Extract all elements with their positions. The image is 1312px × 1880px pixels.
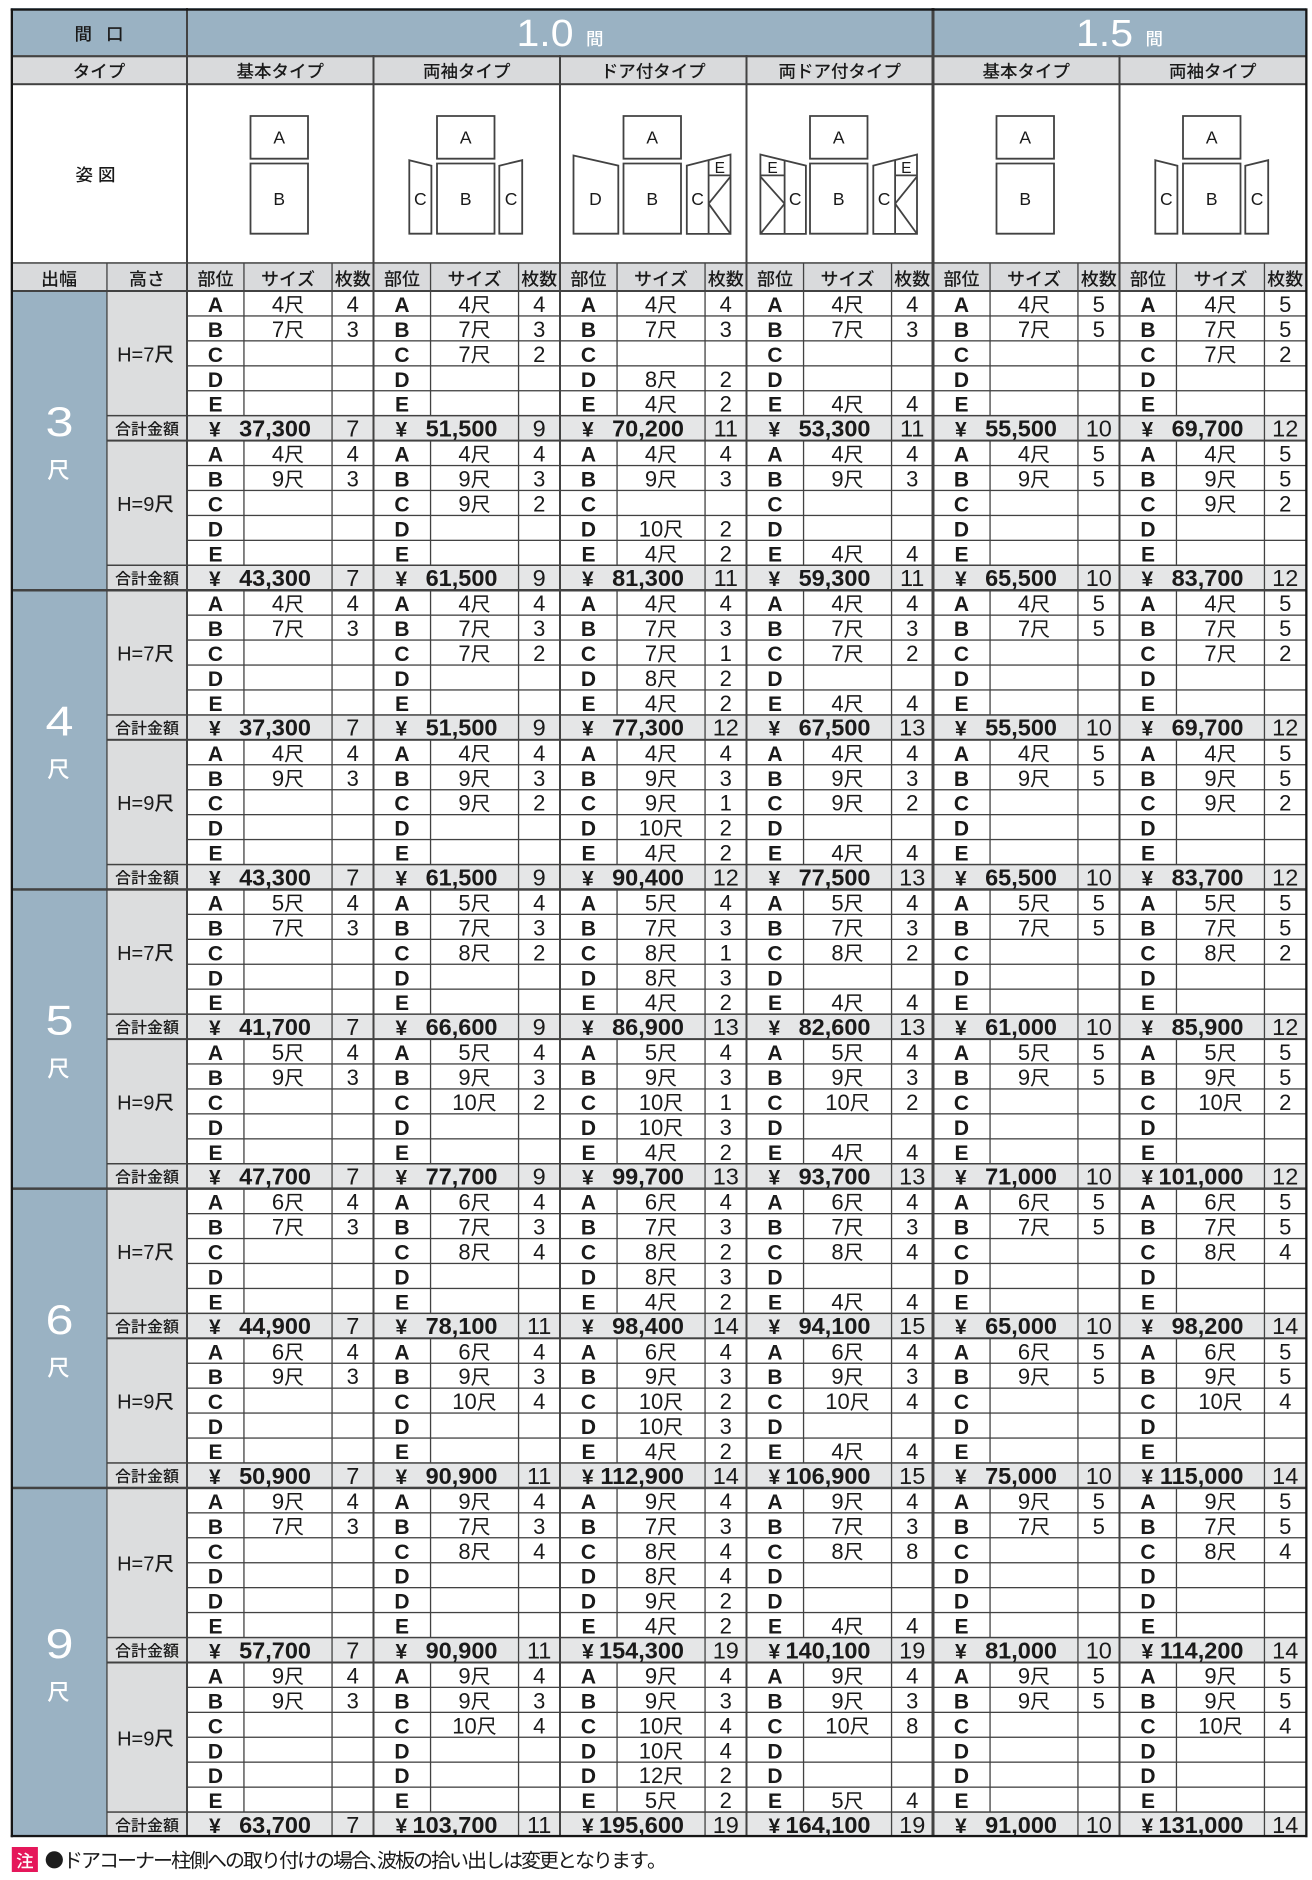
svg-text:B: B: [1140, 618, 1155, 641]
svg-text:2: 2: [720, 1589, 732, 1614]
svg-text:A: A: [1140, 1192, 1155, 1215]
svg-text:12: 12: [1272, 1164, 1298, 1190]
svg-text:B: B: [581, 768, 596, 791]
svg-text:5: 5: [1204, 891, 1216, 916]
svg-text:¥: ¥: [1142, 1815, 1154, 1838]
svg-text:7: 7: [1204, 317, 1216, 342]
svg-text:4: 4: [347, 1339, 359, 1364]
svg-text:7: 7: [831, 616, 843, 641]
svg-text:¥: ¥: [209, 1167, 221, 1190]
svg-text:2: 2: [720, 841, 732, 866]
svg-text:C: C: [767, 1541, 782, 1564]
svg-text:10: 10: [825, 1713, 849, 1738]
svg-text:D: D: [581, 1765, 596, 1788]
svg-text:A: A: [954, 1192, 969, 1215]
svg-text:2: 2: [533, 940, 545, 965]
svg-text:4: 4: [347, 1190, 359, 1215]
svg-text:E: E: [395, 1616, 409, 1639]
svg-text:9: 9: [272, 1489, 284, 1514]
svg-text:7: 7: [645, 1514, 657, 1539]
svg-text:C: C: [394, 942, 409, 965]
svg-text:8: 8: [645, 367, 657, 392]
svg-text:3: 3: [906, 1688, 918, 1713]
svg-text:4: 4: [533, 1240, 545, 1265]
svg-text:4: 4: [347, 591, 359, 616]
svg-text:6: 6: [458, 1339, 470, 1364]
svg-text:9: 9: [272, 1688, 284, 1713]
svg-text:11: 11: [527, 1812, 551, 1838]
svg-text:A: A: [581, 1666, 596, 1689]
svg-text:C: C: [767, 942, 782, 965]
svg-text:4: 4: [645, 741, 657, 766]
svg-text:B: B: [208, 1217, 223, 1240]
svg-text:¥: ¥: [769, 1017, 781, 1040]
svg-text:3: 3: [533, 317, 545, 342]
svg-text:E: E: [581, 1790, 595, 1813]
svg-text:86,900: 86,900: [612, 1014, 684, 1040]
svg-text:2: 2: [720, 666, 732, 691]
svg-text:C: C: [581, 942, 596, 965]
svg-text:C: C: [767, 1715, 782, 1738]
svg-text:9: 9: [272, 467, 284, 492]
svg-text:2: 2: [1279, 791, 1291, 816]
svg-text:5: 5: [1093, 467, 1105, 492]
svg-text:¥: ¥: [582, 1316, 594, 1339]
svg-text:B: B: [394, 1366, 409, 1389]
svg-text:7: 7: [831, 317, 843, 342]
svg-text:8: 8: [645, 666, 657, 691]
svg-text:A: A: [954, 444, 969, 467]
svg-text:B: B: [394, 469, 409, 492]
svg-text:4: 4: [645, 841, 657, 866]
svg-text:B: B: [208, 768, 223, 791]
svg-text:10: 10: [639, 816, 663, 841]
svg-text:C: C: [1140, 942, 1155, 965]
svg-text:66,600: 66,600: [426, 1014, 498, 1040]
svg-text:4: 4: [1204, 741, 1216, 766]
svg-text:112,900: 112,900: [600, 1463, 684, 1489]
svg-text:9: 9: [1204, 467, 1216, 492]
svg-text:¥: ¥: [396, 1316, 408, 1339]
svg-text:9: 9: [458, 1065, 470, 1090]
svg-text:E: E: [395, 1441, 409, 1464]
svg-text:4: 4: [347, 292, 359, 317]
svg-text:D: D: [581, 369, 596, 392]
svg-text:91,000: 91,000: [985, 1812, 1057, 1838]
svg-text:3: 3: [906, 1215, 918, 1240]
svg-text:C: C: [954, 643, 969, 666]
svg-text:9: 9: [533, 416, 546, 442]
svg-text:¥: ¥: [396, 1017, 408, 1040]
svg-text:9: 9: [645, 1664, 657, 1689]
svg-text:7: 7: [645, 915, 657, 940]
svg-text:1: 1: [720, 940, 732, 965]
svg-text:C: C: [208, 1715, 223, 1738]
svg-text:2: 2: [720, 1389, 732, 1414]
svg-text:7: 7: [645, 1215, 657, 1240]
svg-text:5: 5: [1279, 1364, 1291, 1389]
svg-text:C: C: [878, 189, 891, 209]
svg-text:3: 3: [720, 1265, 732, 1290]
svg-text:5: 5: [1093, 1688, 1105, 1713]
svg-text:7: 7: [1204, 342, 1216, 367]
svg-text:9: 9: [1018, 1688, 1030, 1713]
svg-text:7: 7: [272, 1514, 284, 1539]
svg-text:9: 9: [831, 766, 843, 791]
svg-text:3: 3: [533, 766, 545, 791]
svg-text:51,500: 51,500: [426, 416, 498, 442]
svg-text:4: 4: [831, 392, 843, 417]
svg-text:5: 5: [1279, 891, 1291, 916]
svg-text:C: C: [208, 1541, 223, 1564]
svg-text:4: 4: [272, 591, 284, 616]
svg-text:E: E: [1141, 394, 1155, 417]
svg-text:9: 9: [533, 1014, 546, 1040]
svg-text:C: C: [1140, 1092, 1155, 1115]
svg-text:E: E: [395, 1291, 409, 1314]
svg-text:C: C: [1140, 1715, 1155, 1738]
svg-text:C: C: [394, 1391, 409, 1414]
svg-text:E: E: [954, 543, 968, 566]
svg-text:10: 10: [639, 1738, 663, 1763]
svg-text:14: 14: [1272, 1313, 1298, 1339]
svg-text:E: E: [208, 1616, 222, 1639]
svg-text:5: 5: [1279, 467, 1291, 492]
svg-text:D: D: [581, 1117, 596, 1140]
svg-text:11: 11: [527, 1637, 551, 1663]
svg-text:3: 3: [720, 1215, 732, 1240]
svg-text:C: C: [394, 1092, 409, 1115]
svg-text:2: 2: [906, 641, 918, 666]
svg-text:3: 3: [347, 616, 359, 641]
svg-text:4: 4: [906, 292, 918, 317]
svg-text:C: C: [208, 344, 223, 367]
svg-text:E: E: [1141, 543, 1155, 566]
svg-text:A: A: [460, 128, 472, 148]
svg-text:E: E: [581, 1142, 595, 1165]
svg-text:65,000: 65,000: [985, 1313, 1057, 1339]
svg-text:55,500: 55,500: [985, 416, 1057, 442]
svg-text:6: 6: [1204, 1190, 1216, 1215]
svg-text:9: 9: [1204, 1489, 1216, 1514]
svg-text:9: 9: [645, 1065, 657, 1090]
svg-text:¥: ¥: [955, 1466, 967, 1489]
svg-text:7: 7: [272, 1215, 284, 1240]
svg-text:3: 3: [533, 1688, 545, 1713]
svg-text:15: 15: [899, 1313, 925, 1339]
svg-text:4: 4: [831, 1614, 843, 1639]
svg-text:A: A: [394, 1491, 409, 1514]
svg-text:A: A: [1140, 743, 1155, 766]
svg-text:A: A: [208, 444, 223, 467]
svg-text:6: 6: [645, 1339, 657, 1364]
svg-text:E: E: [954, 1790, 968, 1813]
svg-text:D: D: [767, 1267, 782, 1290]
svg-text:5: 5: [1093, 317, 1105, 342]
svg-text:A: A: [208, 294, 223, 317]
svg-text:C: C: [1251, 189, 1264, 209]
svg-text:¥: ¥: [1142, 718, 1154, 741]
svg-text:A: A: [954, 593, 969, 616]
svg-text:4: 4: [831, 990, 843, 1015]
svg-text:B: B: [208, 1366, 223, 1389]
svg-text:B: B: [1019, 189, 1031, 209]
svg-text:¥: ¥: [1142, 1640, 1154, 1663]
svg-text:4: 4: [347, 1040, 359, 1065]
svg-text:¥: ¥: [582, 718, 594, 741]
svg-text:8: 8: [645, 1564, 657, 1589]
svg-text:4: 4: [645, 541, 657, 566]
svg-text:4: 4: [831, 292, 843, 317]
svg-text:A: A: [394, 444, 409, 467]
svg-text:10: 10: [639, 1389, 663, 1414]
svg-text:10: 10: [1086, 1637, 1112, 1663]
svg-text:D: D: [394, 818, 409, 841]
svg-text:D: D: [767, 818, 782, 841]
svg-text:9: 9: [533, 1164, 546, 1190]
svg-text:7: 7: [1018, 317, 1030, 342]
svg-text:4: 4: [831, 442, 843, 467]
svg-text:B: B: [954, 1067, 969, 1090]
svg-text:A: A: [208, 593, 223, 616]
svg-text:3: 3: [533, 1215, 545, 1240]
svg-text:4: 4: [458, 591, 470, 616]
svg-text:4: 4: [1279, 1389, 1291, 1414]
svg-text:3: 3: [46, 398, 74, 445]
svg-text:3: 3: [906, 1364, 918, 1389]
svg-text:B: B: [954, 1516, 969, 1539]
svg-text:3: 3: [533, 1514, 545, 1539]
svg-text:4: 4: [831, 841, 843, 866]
svg-text:44,900: 44,900: [239, 1313, 311, 1339]
svg-text:154,300: 154,300: [599, 1637, 684, 1663]
svg-text:A: A: [208, 1491, 223, 1514]
svg-text:4: 4: [1279, 1240, 1291, 1265]
svg-text:4: 4: [906, 1040, 918, 1065]
svg-text:C: C: [208, 1391, 223, 1414]
svg-text:C: C: [1140, 793, 1155, 816]
svg-text:6: 6: [645, 1190, 657, 1215]
svg-text:H=7: H=7: [117, 644, 154, 666]
svg-text:9: 9: [831, 1489, 843, 1514]
svg-text:A: A: [208, 743, 223, 766]
svg-text:A: A: [954, 1666, 969, 1689]
svg-text:65,500: 65,500: [985, 565, 1057, 591]
svg-text:C: C: [767, 344, 782, 367]
svg-text:A: A: [394, 1042, 409, 1065]
svg-text:D: D: [394, 1765, 409, 1788]
svg-text:9: 9: [1018, 766, 1030, 791]
svg-text:E: E: [715, 160, 725, 177]
svg-text:A: A: [954, 1042, 969, 1065]
svg-text:19: 19: [713, 1637, 739, 1663]
svg-text:D: D: [1140, 668, 1155, 691]
svg-text:5: 5: [1093, 591, 1105, 616]
svg-text:E: E: [954, 1291, 968, 1314]
svg-text:4: 4: [720, 1564, 732, 1589]
svg-text:5: 5: [1279, 1664, 1291, 1689]
svg-text:D: D: [581, 1267, 596, 1290]
svg-text:D: D: [1140, 967, 1155, 990]
svg-text:5: 5: [1093, 1489, 1105, 1514]
svg-text:4: 4: [272, 442, 284, 467]
svg-text:5: 5: [1279, 1489, 1291, 1514]
svg-text:C: C: [208, 1242, 223, 1265]
svg-text:9: 9: [831, 1688, 843, 1713]
svg-text:2: 2: [1279, 492, 1291, 517]
svg-text:77,300: 77,300: [612, 715, 684, 741]
svg-text:7: 7: [346, 1014, 359, 1040]
svg-text:¥: ¥: [1142, 568, 1154, 591]
svg-text:3: 3: [347, 1688, 359, 1713]
svg-text:9: 9: [831, 1065, 843, 1090]
svg-text:D: D: [954, 668, 969, 691]
svg-text:C: C: [1140, 494, 1155, 517]
svg-text:3: 3: [720, 1364, 732, 1389]
svg-text:12: 12: [713, 715, 739, 741]
svg-text:5: 5: [1279, 1514, 1291, 1539]
svg-text:E: E: [768, 992, 782, 1015]
svg-text:195,600: 195,600: [599, 1812, 684, 1838]
svg-text:5: 5: [645, 1788, 657, 1813]
svg-text:A: A: [581, 1042, 596, 1065]
svg-text:A: A: [767, 743, 782, 766]
svg-text:43,300: 43,300: [239, 864, 311, 890]
svg-text:4: 4: [720, 1489, 732, 1514]
svg-text:C: C: [767, 1242, 782, 1265]
svg-text:5: 5: [272, 1040, 284, 1065]
svg-text:¥: ¥: [209, 1316, 221, 1339]
svg-text:4: 4: [645, 1439, 657, 1464]
svg-text:94,100: 94,100: [799, 1313, 871, 1339]
svg-text:A: A: [208, 1042, 223, 1065]
svg-text:¥: ¥: [1142, 419, 1154, 442]
svg-text:51,500: 51,500: [426, 715, 498, 741]
svg-text:B: B: [1140, 768, 1155, 791]
svg-text:H=9: H=9: [117, 494, 154, 516]
svg-text:12: 12: [713, 864, 739, 890]
svg-text:7: 7: [458, 317, 470, 342]
svg-text:B: B: [581, 1690, 596, 1713]
svg-text:57,700: 57,700: [239, 1637, 311, 1663]
svg-text:5: 5: [1093, 1215, 1105, 1240]
svg-text:C: C: [789, 189, 802, 209]
svg-text:E: E: [208, 843, 222, 866]
svg-text:4: 4: [831, 591, 843, 616]
svg-text:5: 5: [458, 891, 470, 916]
svg-text:D: D: [954, 1591, 969, 1614]
svg-text:A: A: [954, 893, 969, 916]
svg-text:2: 2: [533, 641, 545, 666]
svg-text:9: 9: [272, 1065, 284, 1090]
svg-text:D: D: [208, 1117, 223, 1140]
svg-text:E: E: [768, 1142, 782, 1165]
svg-text:C: C: [1140, 344, 1155, 367]
svg-text:E: E: [1141, 693, 1155, 716]
svg-text:¥: ¥: [769, 718, 781, 741]
svg-text:71,000: 71,000: [985, 1164, 1057, 1190]
svg-text:4: 4: [533, 442, 545, 467]
svg-text:4: 4: [720, 741, 732, 766]
svg-text:2: 2: [720, 367, 732, 392]
svg-text:4: 4: [906, 891, 918, 916]
svg-text:8: 8: [645, 1539, 657, 1564]
svg-text:D: D: [208, 1765, 223, 1788]
svg-text:C: C: [954, 344, 969, 367]
svg-text:¥: ¥: [769, 1640, 781, 1663]
svg-text:4: 4: [906, 741, 918, 766]
svg-text:4: 4: [1018, 292, 1030, 317]
svg-text:E: E: [208, 693, 222, 716]
svg-text:A: A: [581, 1341, 596, 1364]
svg-text:90,900: 90,900: [426, 1637, 498, 1663]
svg-text:9: 9: [272, 1364, 284, 1389]
svg-text:C: C: [954, 494, 969, 517]
svg-text:9: 9: [645, 791, 657, 816]
svg-text:4: 4: [720, 1713, 732, 1738]
svg-text:D: D: [954, 1566, 969, 1589]
svg-text:37,300: 37,300: [239, 416, 311, 442]
svg-text:4: 4: [46, 697, 74, 744]
svg-text:D: D: [1140, 1566, 1155, 1589]
svg-text:E: E: [208, 1142, 222, 1165]
svg-text:9: 9: [458, 791, 470, 816]
svg-text:B: B: [1140, 1690, 1155, 1713]
svg-text:19: 19: [899, 1812, 925, 1838]
svg-text:83,700: 83,700: [1172, 864, 1244, 890]
svg-text:B: B: [954, 1217, 969, 1240]
svg-text:7: 7: [458, 1215, 470, 1240]
svg-text:¥: ¥: [396, 1167, 408, 1190]
svg-text:2: 2: [720, 1289, 732, 1314]
svg-text:A: A: [1206, 128, 1218, 148]
svg-text:C: C: [954, 793, 969, 816]
svg-text:A: A: [581, 743, 596, 766]
svg-text:¥: ¥: [582, 419, 594, 442]
svg-text:E: E: [581, 693, 595, 716]
svg-text:¥: ¥: [396, 568, 408, 591]
svg-text:C: C: [767, 1092, 782, 1115]
svg-text:10: 10: [1086, 565, 1112, 591]
svg-text:9: 9: [458, 467, 470, 492]
svg-text:D: D: [581, 1740, 596, 1763]
svg-text:12: 12: [639, 1763, 663, 1788]
svg-text:5: 5: [272, 891, 284, 916]
svg-text:9: 9: [458, 1688, 470, 1713]
svg-text:10: 10: [1198, 1713, 1222, 1738]
svg-text:6: 6: [1204, 1339, 1216, 1364]
svg-text:13: 13: [713, 1164, 739, 1190]
svg-text:7: 7: [1018, 915, 1030, 940]
svg-text:C: C: [581, 1715, 596, 1738]
svg-text:6: 6: [831, 1339, 843, 1364]
svg-text:7: 7: [1204, 616, 1216, 641]
svg-text:9: 9: [533, 864, 546, 890]
svg-text:4: 4: [645, 292, 657, 317]
svg-text:10: 10: [1086, 715, 1112, 741]
svg-text:5: 5: [1093, 1040, 1105, 1065]
svg-text:55,500: 55,500: [985, 715, 1057, 741]
svg-text:E: E: [395, 992, 409, 1015]
svg-text:5: 5: [1093, 1065, 1105, 1090]
svg-text:A: A: [767, 893, 782, 916]
svg-text:C: C: [767, 793, 782, 816]
svg-text:D: D: [1140, 518, 1155, 541]
svg-text:9: 9: [1018, 1489, 1030, 1514]
svg-text:4: 4: [347, 1664, 359, 1689]
svg-text:8: 8: [645, 1240, 657, 1265]
svg-text:A: A: [1140, 893, 1155, 916]
